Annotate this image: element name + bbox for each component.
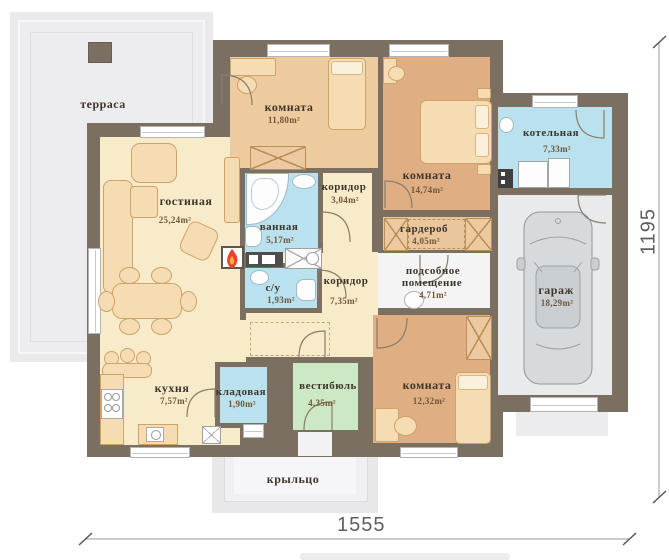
dining-chair [119,318,140,335]
area-corridor2: 7,35m² [330,296,358,306]
fireplace [221,246,244,269]
washing-machine [246,252,283,267]
dimension-height: 1195 [638,202,661,262]
garage-gate [530,397,598,412]
area-bedroom1: 11,80m² [268,115,300,125]
nightstand [477,88,491,99]
label-bedroom1: комната [265,100,314,115]
wardrobe-closet [466,316,492,360]
desk [230,58,276,76]
area-boiler: 7,33m² [543,144,571,154]
room-vestibule [293,363,358,430]
bed-single [328,58,366,130]
area-bedroom3: 12,32m² [413,396,446,406]
nightstand [477,164,491,175]
area-kitchen: 7,57m² [160,396,188,406]
desk-chair [388,66,405,81]
kitchen-sink [146,427,164,442]
dining-chair [119,267,140,284]
toilet [296,279,316,301]
label-living: гостиная [160,194,213,209]
window-living-top [140,126,205,138]
side-table [130,186,158,218]
desk-chair [394,416,417,436]
armchair [131,143,177,183]
area-utility: 4,71m² [419,290,447,300]
window-kitchen [130,447,190,458]
bar-stool [120,348,135,363]
dimension-width: 1555 [337,514,386,537]
area-garage: 18,29m² [541,298,574,308]
dining-table [112,283,182,319]
boiler-unit [518,161,548,188]
dining-chair [151,267,172,284]
entry-opening [298,432,332,456]
window-bedroom2 [389,44,449,57]
area-vestibule: 4,35m² [308,398,336,408]
area-wardrobe: 4,05m² [412,236,440,246]
label-pantry: кладовая [216,386,266,398]
label-wc: с/у [266,282,281,294]
dining-chair [98,291,115,312]
label-boiler: котельная [523,127,579,139]
label-vestibule: вестибюль [299,380,357,392]
floor-plan: терраса гостиная 25,24m² комната 11,80m²… [0,0,669,560]
sink [292,174,316,189]
dining-chair [151,318,172,335]
bed-single [455,372,491,444]
beam-dashed-outline [250,322,330,356]
terrace-pillar [88,42,112,63]
window-bedroom3 [400,447,458,458]
garage-apron [516,412,608,436]
area-corridor1: 3,04m² [331,195,359,205]
wardrobe-unit [465,218,492,251]
sink [499,117,514,133]
area-bathroom: 5,17m² [266,235,294,245]
label-corridor1: коридор [322,181,367,193]
bed-double [420,100,492,164]
vent-icon [202,426,221,444]
label-garage: гараж [538,283,573,298]
window-living-left [88,248,101,334]
laundry-unit [285,248,322,269]
label-kitchen: кухня [155,381,190,396]
window-boiler [532,95,578,108]
area-living: 25,24m² [159,215,192,225]
dining-chair [180,291,197,312]
desk-chair [237,76,257,94]
label-bathroom: ванная [260,221,299,233]
label-bedroom3: комната [403,378,452,393]
label-porch: крыльцо [267,472,319,487]
wardrobe-closet [250,146,306,170]
label-corridor2: коридор [324,275,369,287]
label-wardrobe: гардероб [400,223,448,235]
window-bedroom1 [267,44,330,57]
area-pantry: 1,90m² [228,399,256,409]
label-terrace: терраса [80,97,126,112]
next-sheet-edge [300,553,510,560]
pantry-sill [243,424,264,438]
tv-cabinet [224,157,240,223]
label-bedroom2: комната [403,168,452,183]
area-bedroom2: 14,74m² [411,185,444,195]
label-utility-line1: подсобное [406,265,460,277]
label-utility-line2: помещение [402,277,462,289]
area-wc: 1,93m² [267,295,295,305]
boiler-stove [498,169,513,188]
water-heater [548,158,570,188]
stove [101,389,123,419]
